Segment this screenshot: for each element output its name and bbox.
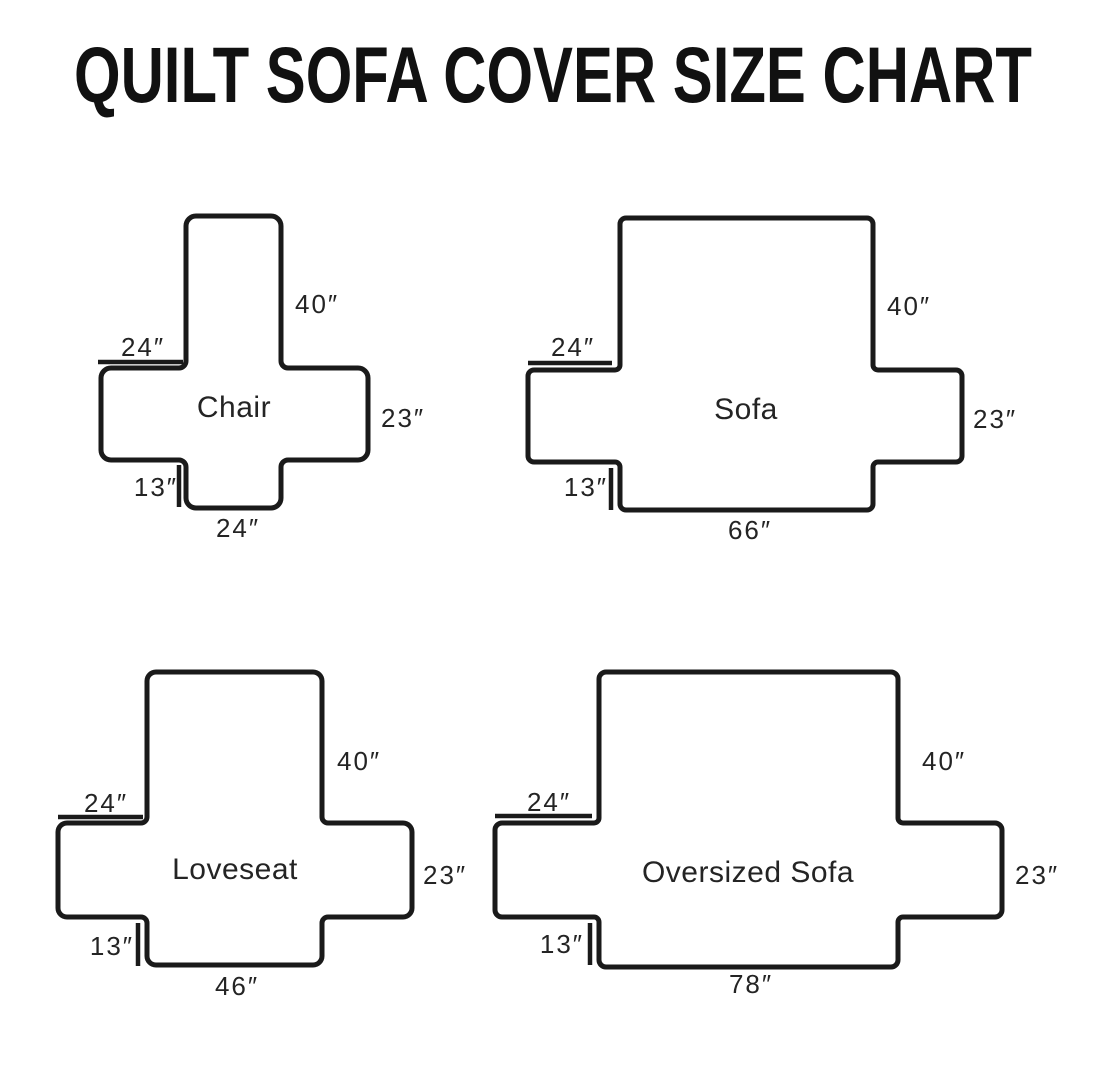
chair-bottom-width-label: 24″ (216, 513, 260, 543)
oversized-sofa-back-height-label: 40″ (922, 746, 966, 776)
oversized-sofa-front-drop-label: 13″ (540, 929, 584, 959)
size-chart-page: QUILT SOFA COVER SIZE CHART 24″ 40″ Chai… (0, 0, 1100, 1092)
chair-name-label: Chair (197, 391, 271, 424)
loveseat-front-drop-label: 13″ (90, 931, 134, 961)
chair-diagram: 24″ 40″ Chair 23″ 13″ 24″ (98, 216, 425, 543)
sofa-side-height-label: 23″ (973, 404, 1017, 434)
loveseat-back-height-label: 40″ (337, 746, 381, 776)
oversized-sofa-diagram: 24″ 40″ Oversized Sofa 23″ 13″ 78″ (495, 672, 1059, 999)
sofa-front-drop-label: 13″ (564, 472, 608, 502)
loveseat-diagram: 24″ 40″ Loveseat 23″ 13″ 46″ (58, 672, 467, 1001)
sofa-bottom-width-label: 66″ (728, 515, 772, 545)
chair-back-height-label: 40″ (295, 289, 339, 319)
oversized-sofa-arm-width-label: 24″ (527, 787, 571, 817)
oversized-sofa-outline (495, 672, 1002, 967)
loveseat-bottom-width-label: 46″ (215, 971, 259, 1001)
oversized-sofa-name-label: Oversized Sofa (642, 856, 854, 889)
sofa-name-label: Sofa (714, 393, 778, 426)
sofa-diagram: 24″ 40″ Sofa 23″ 13″ 66″ (528, 218, 1017, 545)
sofa-arm-width-label: 24″ (551, 332, 595, 362)
chair-front-drop-label: 13″ (134, 472, 178, 502)
oversized-sofa-side-height-label: 23″ (1015, 860, 1059, 890)
chair-arm-width-label: 24″ (121, 332, 165, 362)
loveseat-side-height-label: 23″ (423, 860, 467, 890)
oversized-sofa-bottom-width-label: 78″ (729, 969, 773, 999)
size-chart-figure: QUILT SOFA COVER SIZE CHART 24″ 40″ Chai… (0, 0, 1100, 1092)
loveseat-arm-width-label: 24″ (84, 788, 128, 818)
chair-side-height-label: 23″ (381, 403, 425, 433)
loveseat-name-label: Loveseat (172, 853, 298, 886)
page-title: QUILT SOFA COVER SIZE CHART (74, 30, 1032, 119)
sofa-back-height-label: 40″ (887, 291, 931, 321)
